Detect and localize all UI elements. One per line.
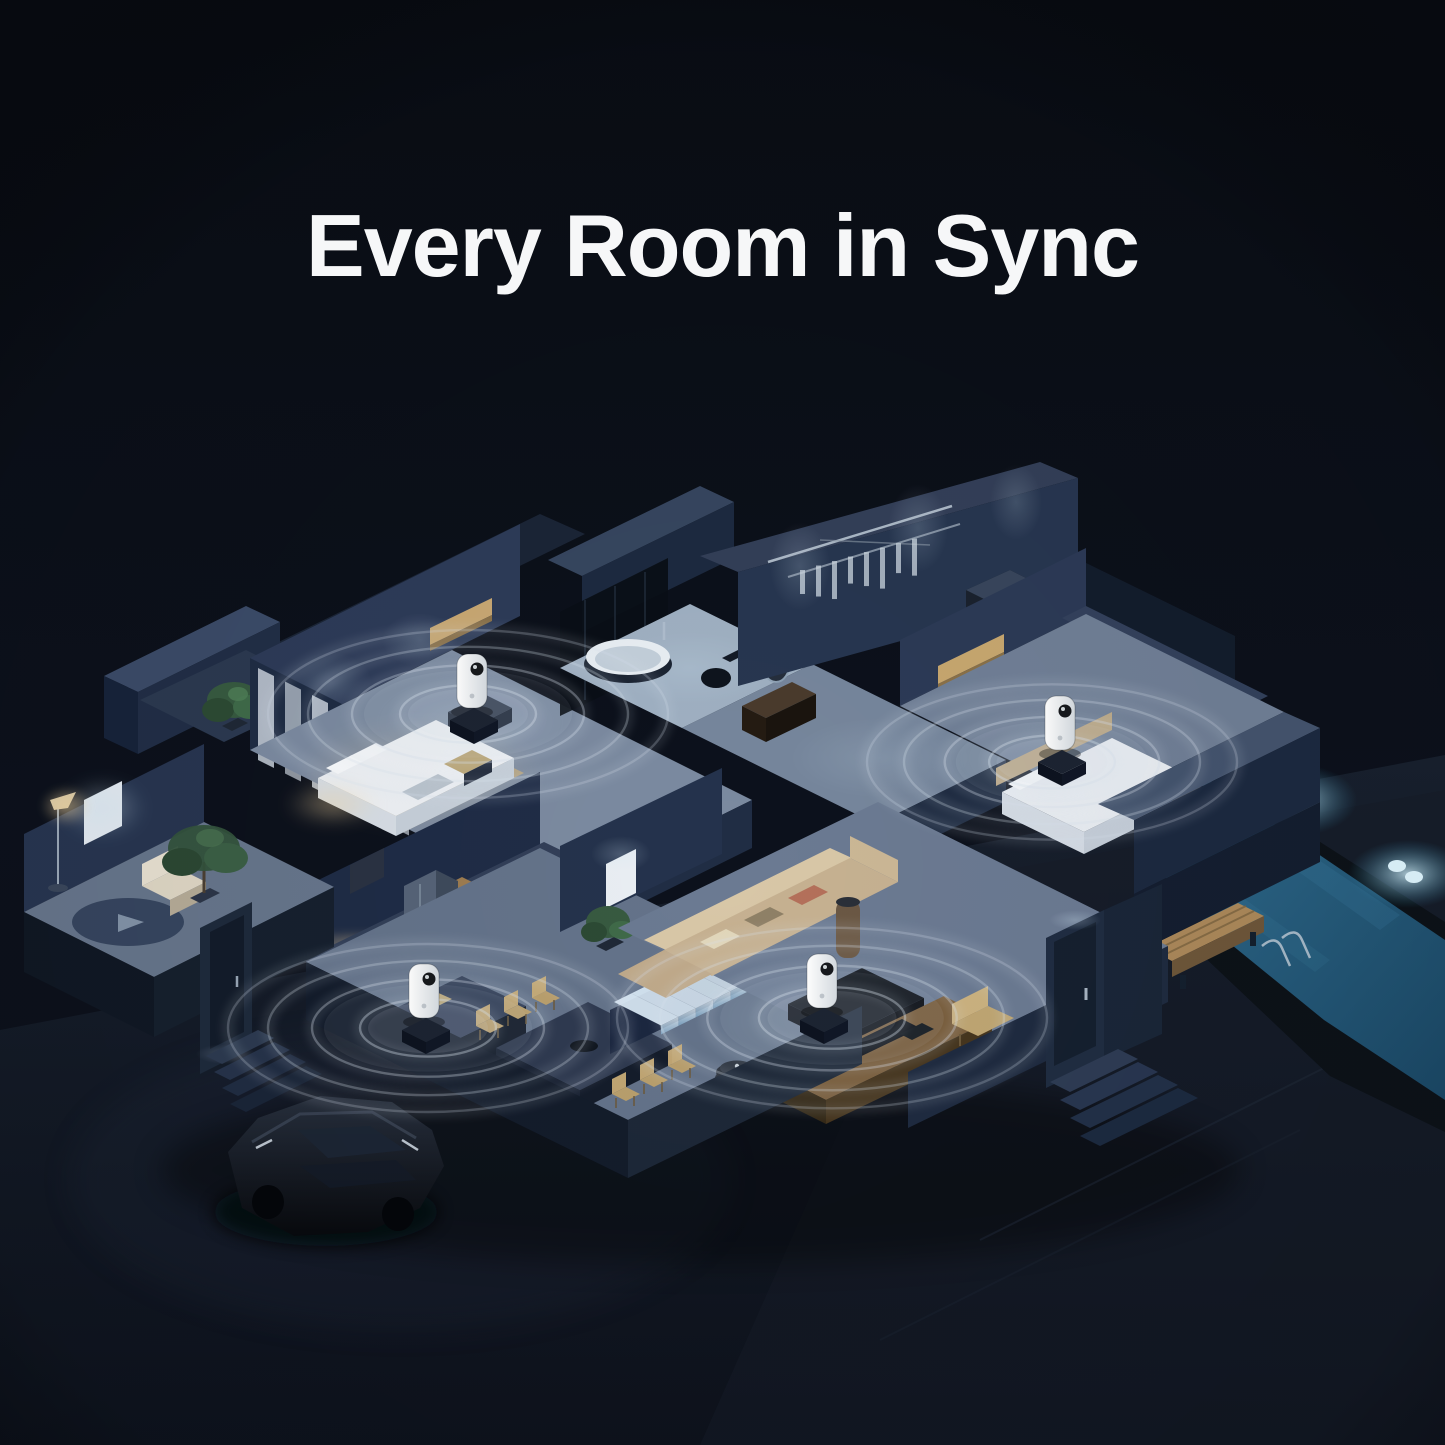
marketing-banner: Every Room in Sync (0, 0, 1445, 1445)
headline: Every Room in Sync (0, 202, 1445, 290)
